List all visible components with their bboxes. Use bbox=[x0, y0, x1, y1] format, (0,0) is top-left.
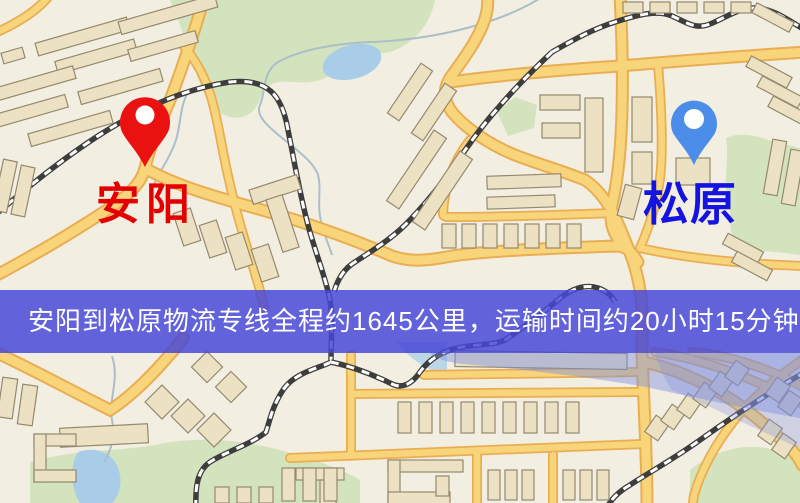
route-info-banner: 安阳到松原物流专线全程约1645公里，运输时间约20小时15分钟. bbox=[0, 290, 800, 353]
route-info-text: 安阳到松原物流专线全程约1645公里，运输时间约20小时15分钟. bbox=[0, 290, 800, 353]
origin-label: 安阳 bbox=[96, 180, 196, 229]
map-screenshot: 安阳 松原 安阳到松原物流专线全程约1645公里，运输时间约20小时15分钟. bbox=[0, 0, 800, 503]
destination-label: 松原 bbox=[643, 178, 737, 230]
origin-pin-hole bbox=[136, 106, 155, 125]
destination-pin-hole bbox=[684, 109, 704, 129]
map-canvas[interactable]: 安阳 松原 bbox=[0, 0, 800, 503]
